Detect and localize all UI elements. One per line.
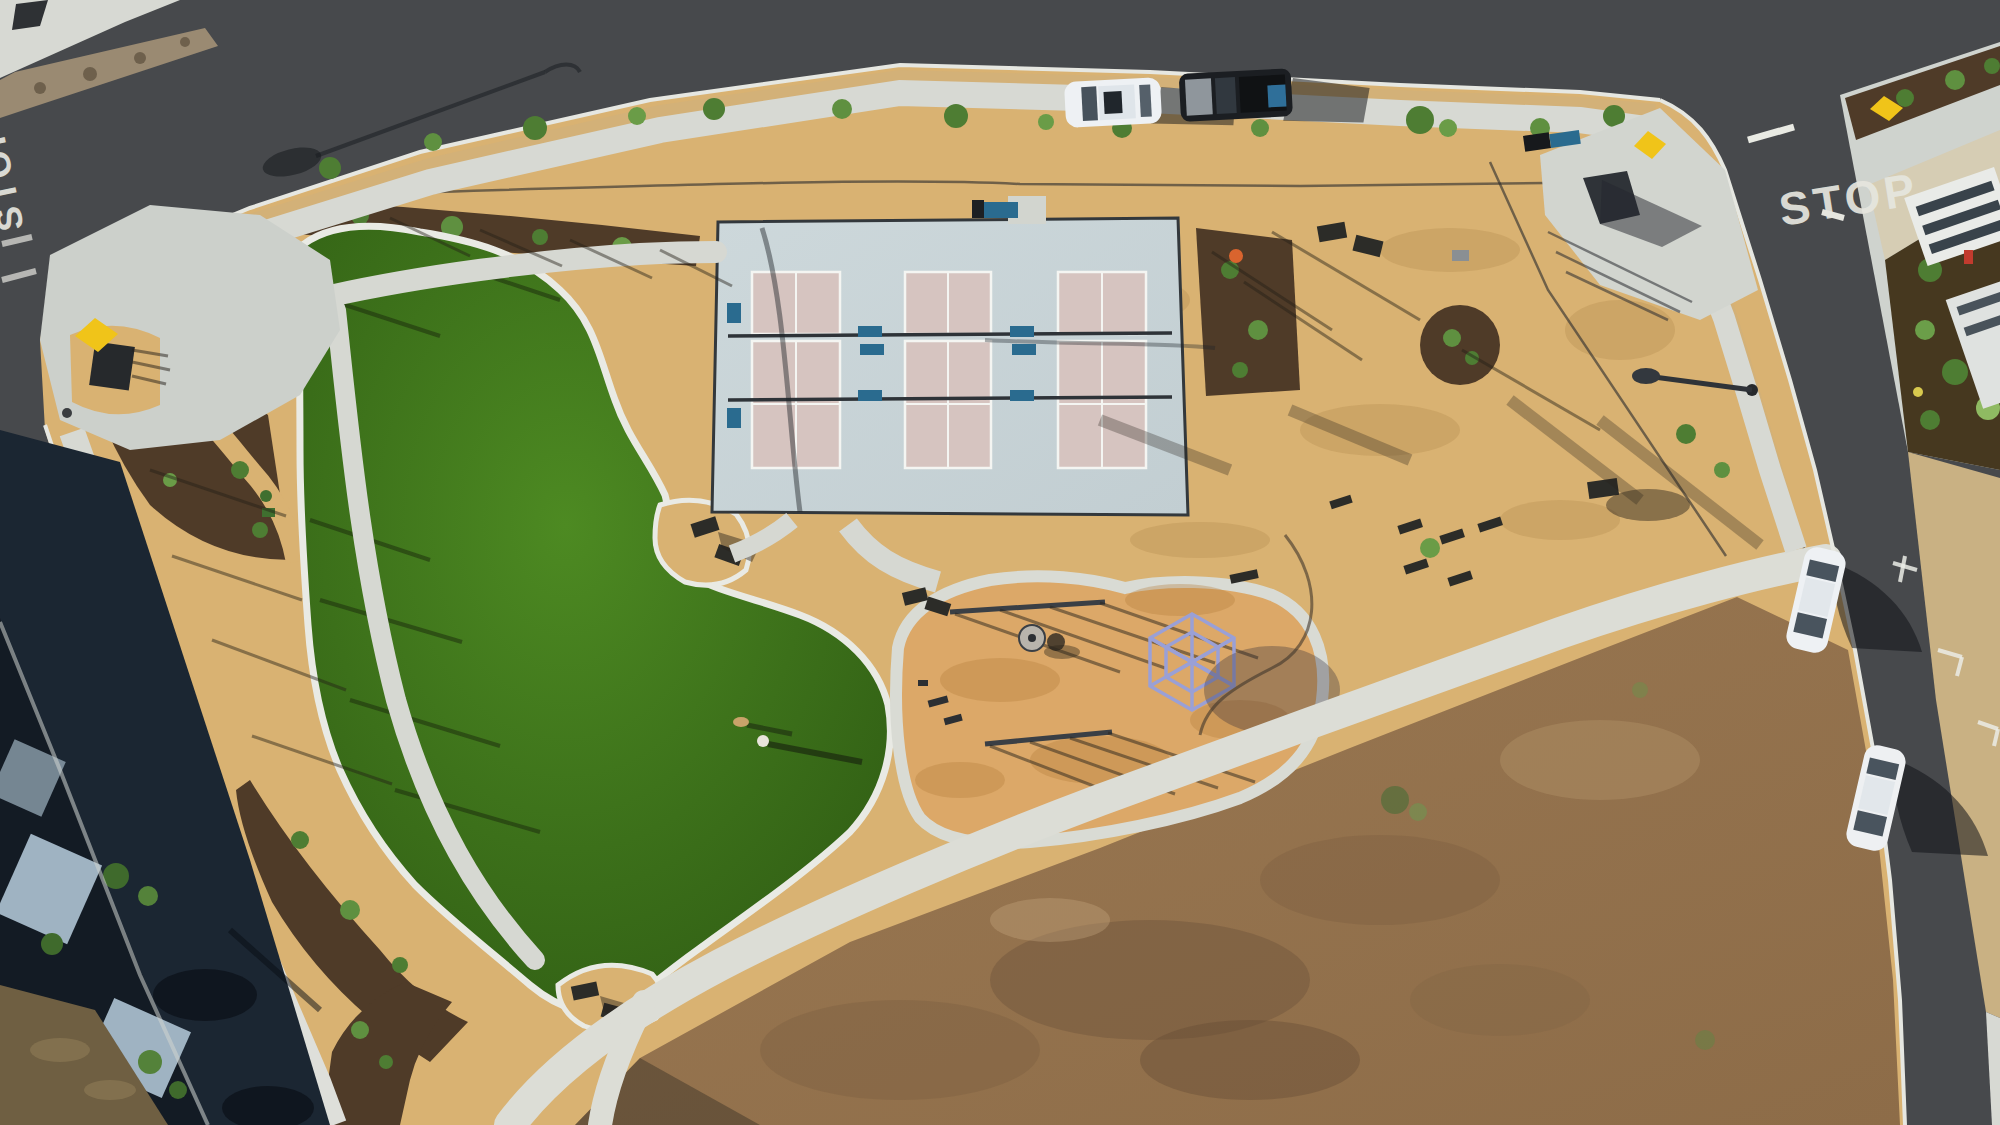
truck-black — [1179, 68, 1293, 122]
scene-canvas: STOP STOP — [0, 0, 2000, 1125]
tree-ring-mulch — [1420, 305, 1500, 385]
flower-orange — [1229, 249, 1243, 263]
pickleball-courts — [712, 196, 1215, 515]
aerial-park-photo: STOP STOP — [0, 0, 2000, 1125]
table-shadow — [1606, 489, 1690, 521]
fire-hydrant — [1964, 250, 1973, 264]
car-white-suv — [1064, 77, 1162, 128]
